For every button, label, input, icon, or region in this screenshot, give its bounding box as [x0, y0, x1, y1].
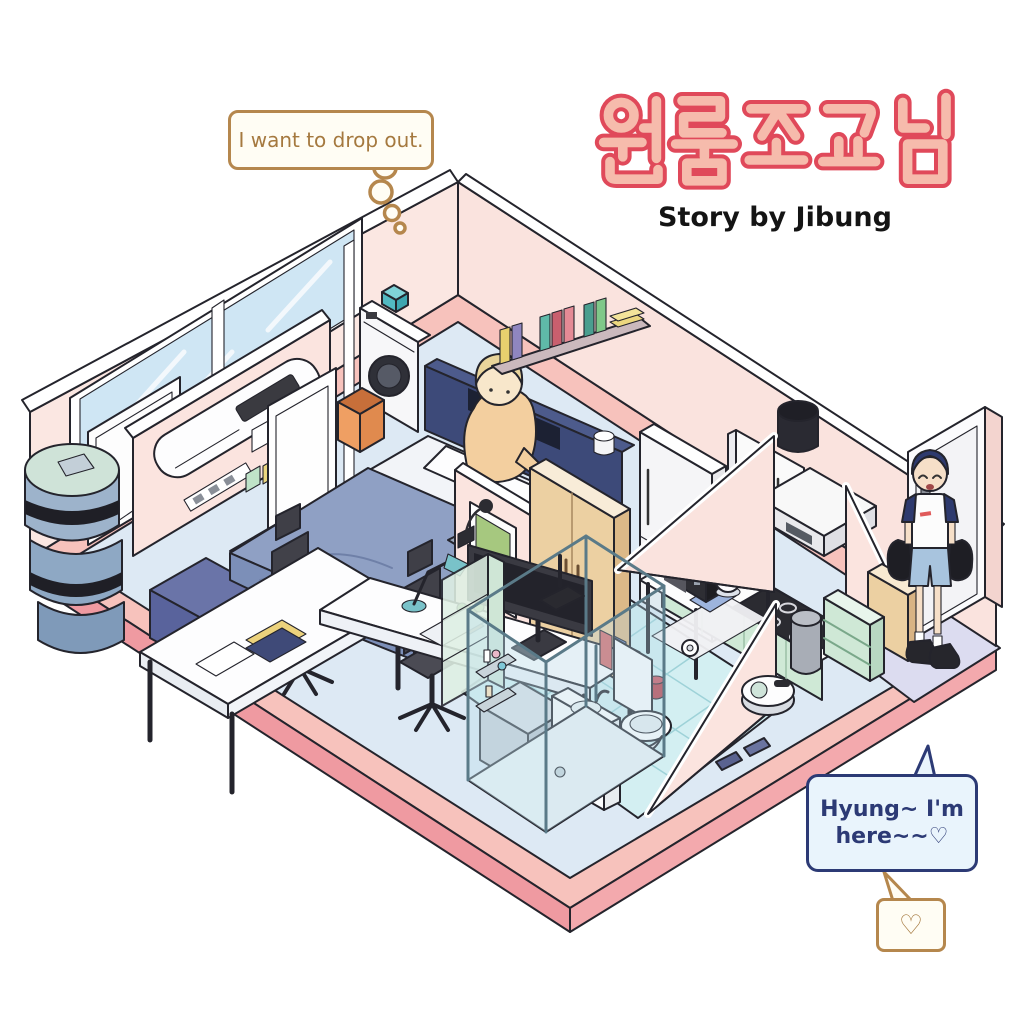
- arrival-line1: Hyung~ I'm: [820, 796, 964, 824]
- speech-bubble-heart: ♡: [876, 898, 946, 952]
- laundry-basket: [338, 388, 384, 452]
- stool: [778, 401, 818, 452]
- title-subtitle: Story by Jibung: [620, 202, 930, 233]
- webtoon-cover: 원룸조교님 Story by Jibung I want to drop out…: [0, 0, 1024, 1024]
- heart-icon: ♡: [899, 910, 923, 941]
- speech-bubble-dropout: I want to drop out.: [228, 110, 434, 170]
- speech-bubble-arrival: Hyung~ I'm here~~♡: [806, 774, 978, 872]
- toilet-paper-roll: [594, 431, 614, 441]
- trash-can: [791, 610, 821, 674]
- title-korean: [604, 98, 946, 181]
- bag-right: [948, 540, 972, 580]
- robot-vacuum: [742, 676, 794, 715]
- heart-bubble-tail: [884, 872, 910, 901]
- bag-left: [888, 540, 912, 580]
- dropout-text: I want to drop out.: [238, 128, 423, 152]
- arrival-line2: here~~♡: [836, 823, 949, 851]
